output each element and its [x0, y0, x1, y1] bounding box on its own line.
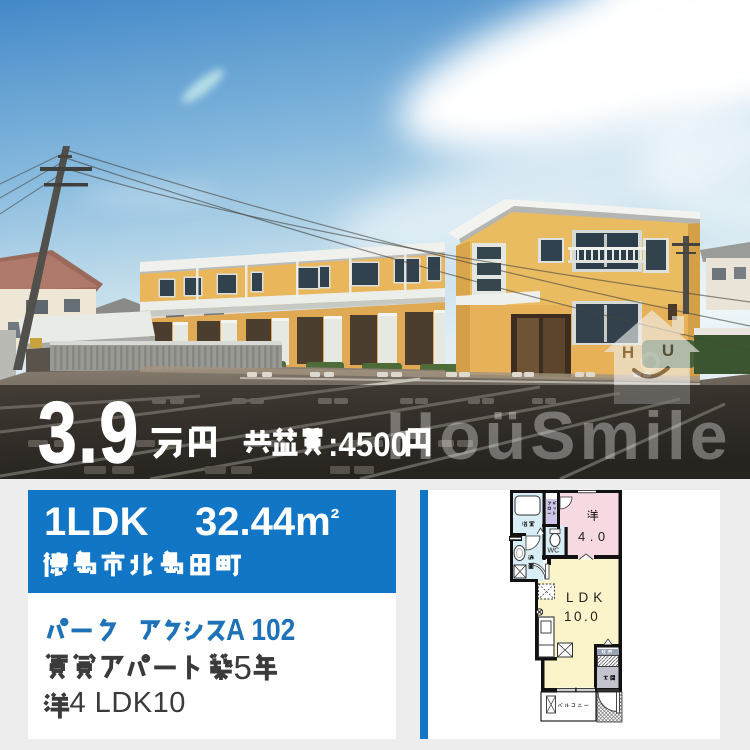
svg-text:4.0: 4.0	[578, 529, 610, 544]
svg-text:WC: WC	[548, 548, 560, 555]
svg-text:LDK: LDK	[566, 590, 607, 605]
svg-text:U: U	[662, 341, 674, 360]
svg-text:10.0: 10.0	[564, 609, 600, 624]
svg-text:H: H	[622, 343, 634, 362]
